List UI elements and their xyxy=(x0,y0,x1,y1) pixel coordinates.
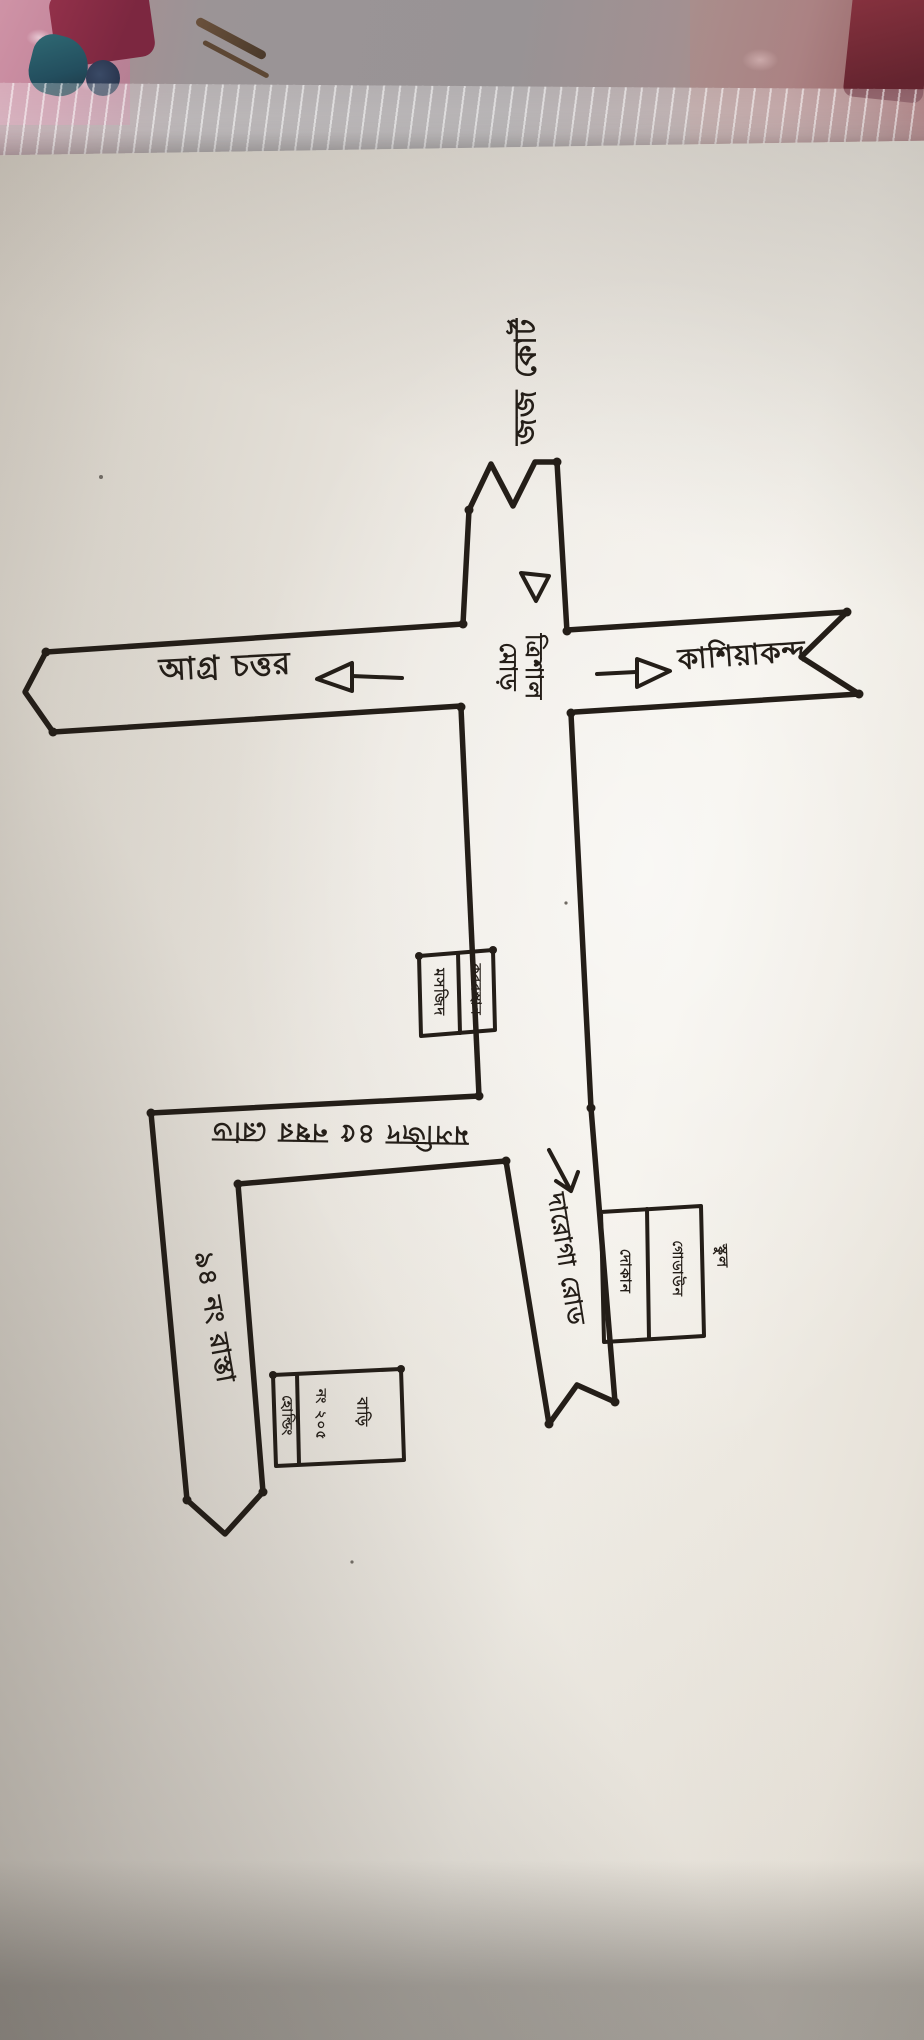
road94-right-rail xyxy=(238,1184,263,1492)
road-west-end-chevron xyxy=(25,652,53,732)
road94-end-chevron xyxy=(187,1492,263,1534)
label-road-45: মসজিদ ৪৫ নম্বর রোড xyxy=(175,1115,505,1150)
map-drawing xyxy=(0,0,924,2040)
label-junction: ত্রিশাল মোড় xyxy=(487,602,547,732)
road-north-right-rail xyxy=(557,462,567,632)
label-graveyard-cell: কবরস্থান xyxy=(467,948,482,1032)
label-house-holding: হোল্ডিং xyxy=(278,1374,293,1458)
road-south-end-chevron xyxy=(549,1385,615,1424)
east-arrow-tail xyxy=(597,672,637,674)
road-west-bottom-rail xyxy=(53,706,461,732)
road-mid-left-rail xyxy=(461,708,479,1096)
photo-of-sketch-map: জজ কোর্ট ত্রিশাল মোড় আগ্র চত্তর কাশিয়া… xyxy=(0,0,924,2040)
shop-box-divider xyxy=(647,1209,649,1339)
road45-bottom-rail xyxy=(238,1161,506,1184)
north-road-arrow xyxy=(521,573,549,601)
label-school-outside: স্কুল xyxy=(712,1211,732,1302)
bottom-shadow xyxy=(0,1860,924,2040)
label-shop-cell: দোকান xyxy=(617,1216,634,1326)
label-top-destination: জজ কোর্ট xyxy=(510,282,543,482)
house-box-divider xyxy=(297,1374,299,1464)
road-north-left-rail xyxy=(463,510,469,624)
road45-top-rail xyxy=(151,1096,479,1113)
west-arrow-tail xyxy=(352,676,402,678)
label-mosque-cell: মসজিদ xyxy=(431,954,448,1030)
mosque-box-divider xyxy=(458,953,460,1033)
junction-dots xyxy=(42,458,864,1505)
road94-left-rail xyxy=(151,1113,187,1500)
label-junction-line1: ত্রিশাল xyxy=(521,602,547,732)
label-house-number: নং ২০৫ xyxy=(312,1375,327,1455)
road-east-top-rail xyxy=(567,612,847,630)
label-junction-line2: মোড় xyxy=(494,602,520,732)
label-godown-cell: গোডাউন xyxy=(669,1211,684,1326)
road-east-bottom-rail xyxy=(575,694,859,712)
label-house: বাড়ি xyxy=(354,1372,371,1452)
road-mid-right-rail xyxy=(571,714,591,1108)
